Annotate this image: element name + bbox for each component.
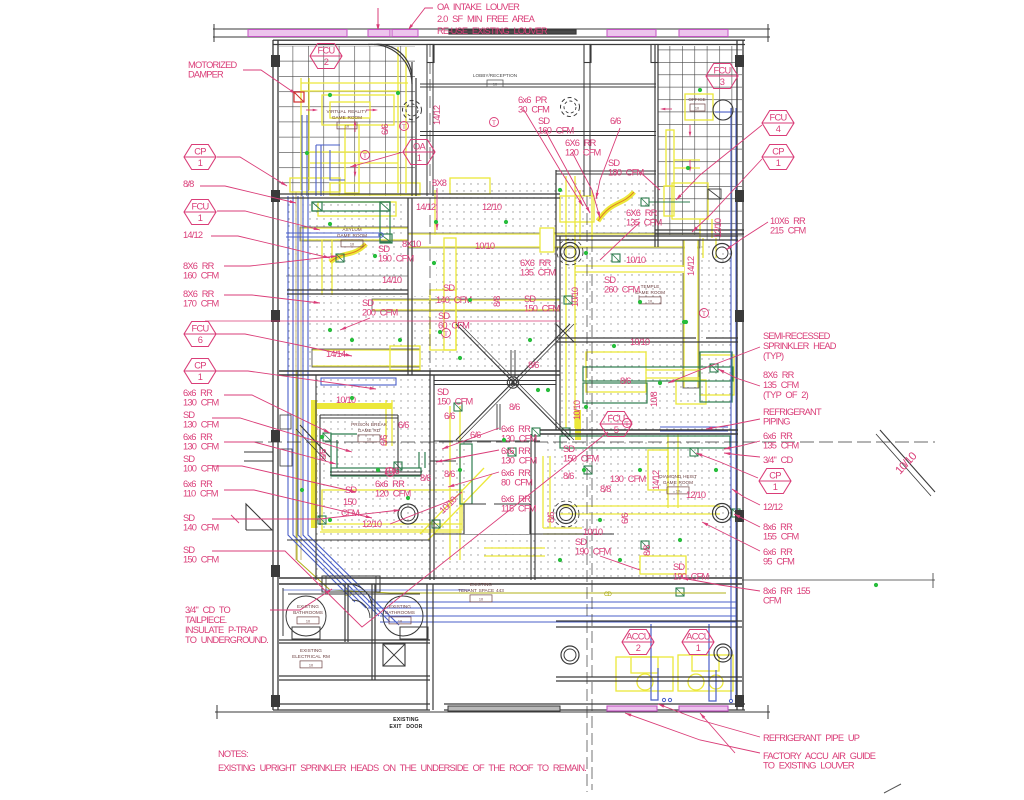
svg-text:8/6: 8/6 (420, 473, 431, 483)
svg-text:8/6: 8/6 (444, 469, 455, 479)
svg-text:150 CFM: 150 CFM (524, 304, 559, 314)
svg-text:160 CFM: 160 CFM (183, 271, 218, 281)
svg-text:140 CFM: 140 CFM (436, 295, 471, 305)
svg-text:10: 10 (367, 437, 371, 441)
svg-text:EXISTING: EXISTING (470, 582, 492, 587)
svg-text:FCU: FCU (191, 324, 208, 334)
svg-text:BATHROOMS: BATHROOMS (293, 610, 323, 615)
svg-text:6: 6 (198, 335, 203, 345)
svg-text:EXISTING: EXISTING (300, 648, 322, 653)
svg-text:EXISTING UPRIGHT SPRINKLER HEA: EXISTING UPRIGHT SPRINKLER HEADS ON THE … (218, 763, 586, 773)
svg-text:REFRIGERANT PIPE UP: REFRIGERANT PIPE UP (763, 733, 860, 743)
svg-text:1: 1 (696, 643, 701, 653)
svg-text:SD: SD (524, 294, 536, 304)
svg-text:10: 10 (648, 299, 652, 303)
svg-text:8X6 RR: 8X6 RR (763, 370, 795, 380)
svg-text:GAME ROOM: GAME ROOM (332, 115, 362, 120)
svg-text:150: 150 (343, 497, 357, 507)
svg-text:180 CFM: 180 CFM (608, 168, 643, 178)
svg-text:130 CFM: 130 CFM (501, 456, 536, 466)
svg-text:140 CFM: 140 CFM (183, 523, 218, 533)
svg-text:130 CFM: 130 CFM (183, 442, 218, 452)
svg-text:10X6 RR: 10X6 RR (770, 216, 806, 226)
svg-text:170 CFM: 170 CFM (183, 299, 218, 309)
svg-text:T: T (492, 120, 496, 127)
svg-text:VIRTUAL REALITY: VIRTUAL REALITY (327, 109, 369, 114)
svg-text:PIPING: PIPING (763, 417, 790, 427)
svg-text:95 CFM: 95 CFM (763, 557, 794, 567)
svg-text:6/6: 6/6 (610, 116, 621, 126)
svg-text:LOBBY/RECEPTION: LOBBY/RECEPTION (473, 73, 517, 78)
svg-text:SD: SD (345, 485, 357, 495)
svg-text:135 CFM: 135 CFM (763, 441, 798, 451)
svg-text:FCU: FCU (317, 46, 334, 56)
svg-text:120 CFM: 120 CFM (565, 148, 600, 158)
svg-text:10/10: 10/10 (583, 527, 603, 537)
svg-text:10/6: 10/6 (384, 466, 400, 476)
svg-text:OFFICE: OFFICE (688, 97, 705, 102)
svg-text:8X6 RR: 8X6 RR (183, 261, 215, 271)
svg-text:130 CFM: 130 CFM (183, 398, 218, 408)
svg-text:2.0 SF MIN FREE AREA: 2.0 SF MIN FREE AREA (437, 14, 536, 24)
svg-text:200 CFM: 200 CFM (362, 308, 397, 318)
svg-text:8/6: 8/6 (528, 360, 539, 370)
svg-text:NOTES:: NOTES: (218, 749, 248, 759)
svg-text:10/10: 10/10 (475, 241, 495, 251)
svg-text:6/6: 6/6 (620, 513, 630, 524)
svg-text:FCU: FCU (713, 66, 730, 76)
svg-text:10: 10 (306, 619, 310, 623)
svg-text:4: 4 (776, 124, 781, 134)
svg-text:SD: SD (608, 158, 620, 168)
svg-text:10/10: 10/10 (570, 287, 580, 307)
svg-text:150 CFM: 150 CFM (563, 454, 598, 464)
svg-text:160 CFM: 160 CFM (538, 126, 573, 136)
svg-text:6x6 RR: 6x6 RR (501, 494, 531, 504)
svg-text:T: T (444, 331, 448, 338)
svg-text:BATHROOMS: BATHROOMS (385, 610, 415, 615)
svg-text:12/10: 12/10 (482, 202, 502, 212)
svg-text:100 CFM: 100 CFM (183, 464, 218, 474)
svg-text:GAME ROOM: GAME ROOM (337, 233, 367, 238)
svg-text:TO EXISTING LOUVER: TO EXISTING LOUVER (763, 761, 855, 771)
svg-text:8X8: 8X8 (432, 178, 447, 188)
svg-text:8x6 RR 155: 8x6 RR 155 (763, 586, 810, 596)
svg-text:DAMPER: DAMPER (188, 70, 224, 80)
svg-text:30 CFM: 30 CFM (518, 105, 549, 115)
svg-text:6x6 RR: 6x6 RR (501, 468, 531, 478)
svg-text:SD: SD (563, 444, 575, 454)
svg-text:10: 10 (695, 107, 699, 111)
svg-text:ASYLUM: ASYLUM (342, 227, 361, 232)
svg-text:SPRINKLER HEAD: SPRINKLER HEAD (763, 341, 837, 351)
svg-text:135 CFM: 135 CFM (763, 380, 798, 390)
svg-text:190 CFM: 190 CFM (378, 254, 413, 264)
svg-text:SD: SD (183, 545, 195, 555)
svg-text:12/12: 12/12 (763, 502, 783, 512)
svg-text:12/10: 12/10 (362, 519, 382, 529)
svg-text:MOTORIZED: MOTORIZED (188, 60, 237, 70)
svg-text:6x6 RR: 6x6 RR (763, 431, 793, 441)
svg-text:SD: SD (438, 311, 450, 321)
svg-text:12/10: 12/10 (713, 218, 723, 238)
svg-text:190 CFM: 190 CFM (575, 547, 610, 557)
svg-text:10: 10 (493, 83, 497, 87)
svg-text:120 CFM: 120 CFM (375, 489, 410, 499)
svg-text:SD: SD (443, 283, 455, 293)
svg-text:6X6 RR: 6X6 RR (565, 138, 597, 148)
svg-text:SD: SD (437, 387, 449, 397)
svg-text:14/12: 14/12 (183, 230, 203, 240)
svg-text:2: 2 (636, 643, 641, 653)
svg-text:6X6 RR: 6X6 RR (520, 258, 552, 268)
svg-text:1: 1 (198, 372, 203, 382)
svg-text:1: 1 (198, 158, 203, 168)
svg-text:10/10: 10/10 (630, 337, 650, 347)
svg-text:6/6: 6/6 (444, 411, 455, 421)
svg-text:14/12: 14/12 (686, 256, 696, 276)
svg-text:6X6 RR: 6X6 RR (626, 208, 658, 218)
svg-text:GAME ROOM: GAME ROOM (663, 480, 693, 485)
svg-text:1: 1 (776, 158, 781, 168)
svg-text:ACCU: ACCU (626, 632, 650, 642)
svg-text:8x6 RR: 8x6 RR (763, 522, 793, 532)
svg-text:150 CFM: 150 CFM (183, 555, 218, 565)
svg-text:10: 10 (309, 663, 313, 667)
svg-text:EXIT DOOR: EXIT DOOR (389, 724, 422, 730)
svg-text:8/8: 8/8 (642, 545, 652, 556)
svg-text:6x6 RR: 6x6 RR (763, 547, 793, 557)
svg-text:5: 5 (614, 425, 619, 435)
svg-text:FCU: FCU (607, 414, 624, 424)
svg-text:TENANT SPACE 443: TENANT SPACE 443 (458, 588, 504, 593)
svg-text:2: 2 (324, 57, 329, 67)
svg-text:6x6 RR: 6x6 RR (183, 388, 213, 398)
svg-text:8/6: 8/6 (509, 402, 520, 412)
svg-text:CP: CP (194, 147, 206, 157)
svg-text:215 CFM: 215 CFM (770, 226, 805, 236)
svg-text:10: 10 (345, 124, 349, 128)
svg-text:CP: CP (769, 471, 781, 481)
svg-text:6/6: 6/6 (318, 449, 328, 460)
svg-text:SD: SD (183, 454, 195, 464)
svg-text:10/8: 10/8 (649, 391, 659, 407)
svg-text:CFM: CFM (341, 508, 359, 518)
svg-text:14/10: 14/10 (382, 275, 402, 285)
svg-text:1: 1 (773, 482, 778, 492)
svg-text:SD: SD (183, 410, 195, 420)
svg-text:14/12: 14/12 (416, 202, 436, 212)
svg-text:130 CFM: 130 CFM (183, 420, 218, 430)
svg-text:SD: SD (673, 562, 685, 572)
svg-text:T: T (402, 124, 406, 131)
svg-text:TEMPLE: TEMPLE (641, 284, 660, 289)
svg-text:10: 10 (676, 489, 680, 493)
svg-text:TO UNDERGROUND.: TO UNDERGROUND. (185, 635, 268, 645)
svg-text:14/12: 14/12 (432, 105, 442, 125)
svg-text:10: 10 (398, 619, 402, 623)
svg-text:SD: SD (604, 275, 616, 285)
svg-text:CP: CP (194, 361, 206, 371)
svg-text:GAME RD: GAME RD (358, 428, 381, 433)
svg-text:14/14: 14/14 (326, 349, 346, 359)
svg-text:T: T (363, 153, 367, 160)
svg-text:10: 10 (350, 242, 354, 246)
svg-text:(TYP): (TYP) (763, 351, 784, 361)
svg-text:SD: SD (362, 298, 374, 308)
svg-text:DIAMOND HEIST: DIAMOND HEIST (659, 474, 697, 479)
svg-text:OA: OA (413, 142, 427, 152)
svg-text:FCU: FCU (769, 113, 786, 123)
svg-text:1: 1 (198, 213, 203, 223)
svg-text:6/6: 6/6 (380, 124, 390, 135)
svg-text:3/4" CD: 3/4" CD (763, 455, 794, 465)
svg-text:6x6 RR: 6x6 RR (501, 424, 531, 434)
svg-text:PRISON BREAK: PRISON BREAK (351, 422, 388, 427)
svg-text:10: 10 (479, 597, 483, 601)
svg-text:ACCU: ACCU (686, 632, 710, 642)
svg-text:FCU: FCU (191, 202, 208, 212)
svg-text:3/4" CD TO: 3/4" CD TO (185, 605, 231, 615)
svg-text:ELECTRICAL RM: ELECTRICAL RM (292, 654, 330, 659)
svg-text:EXISTING: EXISTING (389, 604, 411, 609)
svg-text:6/6: 6/6 (379, 435, 389, 446)
svg-text:130 CFM: 130 CFM (501, 434, 536, 444)
svg-text:GAME ROOM: GAME ROOM (635, 290, 665, 295)
svg-text:CP: CP (772, 147, 784, 157)
svg-text:REFRIGERANT: REFRIGERANT (763, 407, 822, 417)
svg-text:135 CFM: 135 CFM (520, 268, 555, 278)
svg-text:115 CFM: 115 CFM (501, 504, 536, 514)
svg-text:6x6 PR: 6x6 PR (518, 95, 548, 105)
svg-text:260 CFM: 260 CFM (604, 285, 639, 295)
svg-text:110 CFM: 110 CFM (183, 489, 218, 499)
svg-text:8/6: 8/6 (546, 512, 556, 523)
svg-text:6/6: 6/6 (398, 420, 409, 430)
svg-text:8/8: 8/8 (600, 484, 611, 494)
svg-text:TAILPIECE.: TAILPIECE. (185, 615, 227, 625)
svg-text:10/10: 10/10 (572, 400, 582, 420)
svg-text:(TYP OF 2): (TYP OF 2) (763, 390, 809, 400)
svg-text:6x6 RR: 6x6 RR (375, 479, 405, 489)
svg-text:EXISTING: EXISTING (297, 604, 319, 609)
svg-text:135 CFM: 135 CFM (626, 218, 661, 228)
svg-text:190 CFM: 190 CFM (673, 572, 708, 582)
svg-text:8/6: 8/6 (620, 376, 631, 386)
svg-text:8/8: 8/8 (492, 296, 502, 307)
svg-text:80 CFM: 80 CFM (501, 478, 532, 488)
svg-text:SD: SD (538, 116, 550, 126)
svg-text:INSULATE P-TRAP: INSULATE P-TRAP (185, 625, 258, 635)
svg-text:10/10: 10/10 (626, 255, 646, 265)
svg-text:RE-USE EXISTING LOUVER: RE-USE EXISTING LOUVER (437, 26, 548, 36)
svg-text:FACTORY ACCU AIR GUIDE: FACTORY ACCU AIR GUIDE (763, 751, 876, 761)
svg-text:EXISTING: EXISTING (393, 717, 419, 723)
svg-text:SEMI-RECESSED: SEMI-RECESSED (763, 331, 831, 341)
svg-text:6x6 RR: 6x6 RR (183, 432, 213, 442)
svg-text:SD: SD (183, 513, 195, 523)
svg-text:T: T (702, 311, 706, 318)
svg-text:8X10: 8X10 (402, 239, 421, 249)
svg-text:1: 1 (417, 153, 422, 163)
svg-text:14/12: 14/12 (651, 470, 661, 490)
svg-text:OA INTAKE LOUVER: OA INTAKE LOUVER (437, 2, 520, 12)
svg-text:SD: SD (575, 537, 587, 547)
svg-text:6x6 RR: 6x6 RR (183, 479, 213, 489)
svg-text:12/10: 12/10 (686, 490, 706, 500)
svg-text:6x6 RR: 6x6 RR (501, 446, 531, 456)
svg-text:155 CFM: 155 CFM (763, 532, 798, 542)
svg-text:8/6: 8/6 (563, 471, 574, 481)
svg-text:SD: SD (378, 244, 390, 254)
svg-text:60 CFM: 60 CFM (438, 321, 469, 331)
svg-text:150 CFM: 150 CFM (437, 397, 472, 407)
svg-text:130 CFM: 130 CFM (610, 474, 645, 484)
svg-text:3: 3 (720, 77, 725, 87)
svg-text:8/8: 8/8 (183, 179, 194, 189)
svg-text:8X6 RR: 8X6 RR (183, 289, 215, 299)
svg-text:CFM: CFM (763, 596, 781, 606)
